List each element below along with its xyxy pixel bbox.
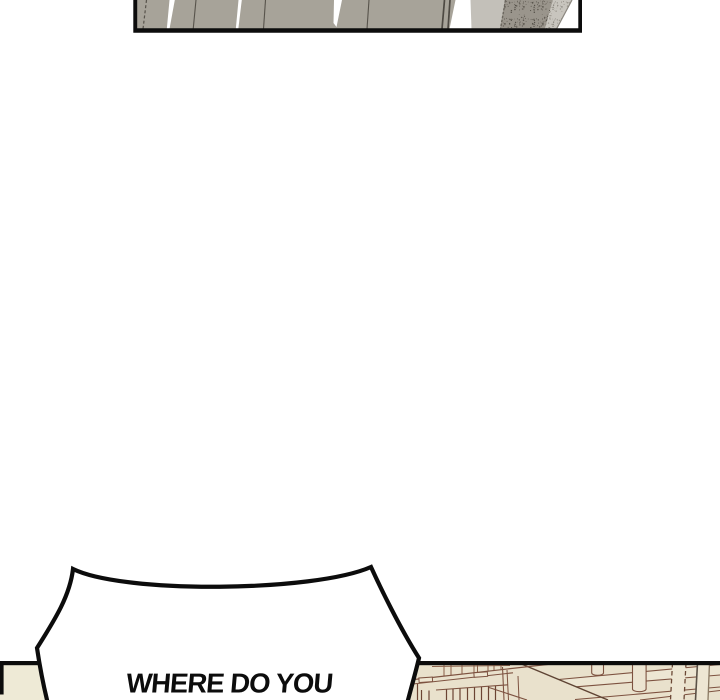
svg-text:WHERE DO YOU: WHERE DO YOU xyxy=(125,667,334,698)
